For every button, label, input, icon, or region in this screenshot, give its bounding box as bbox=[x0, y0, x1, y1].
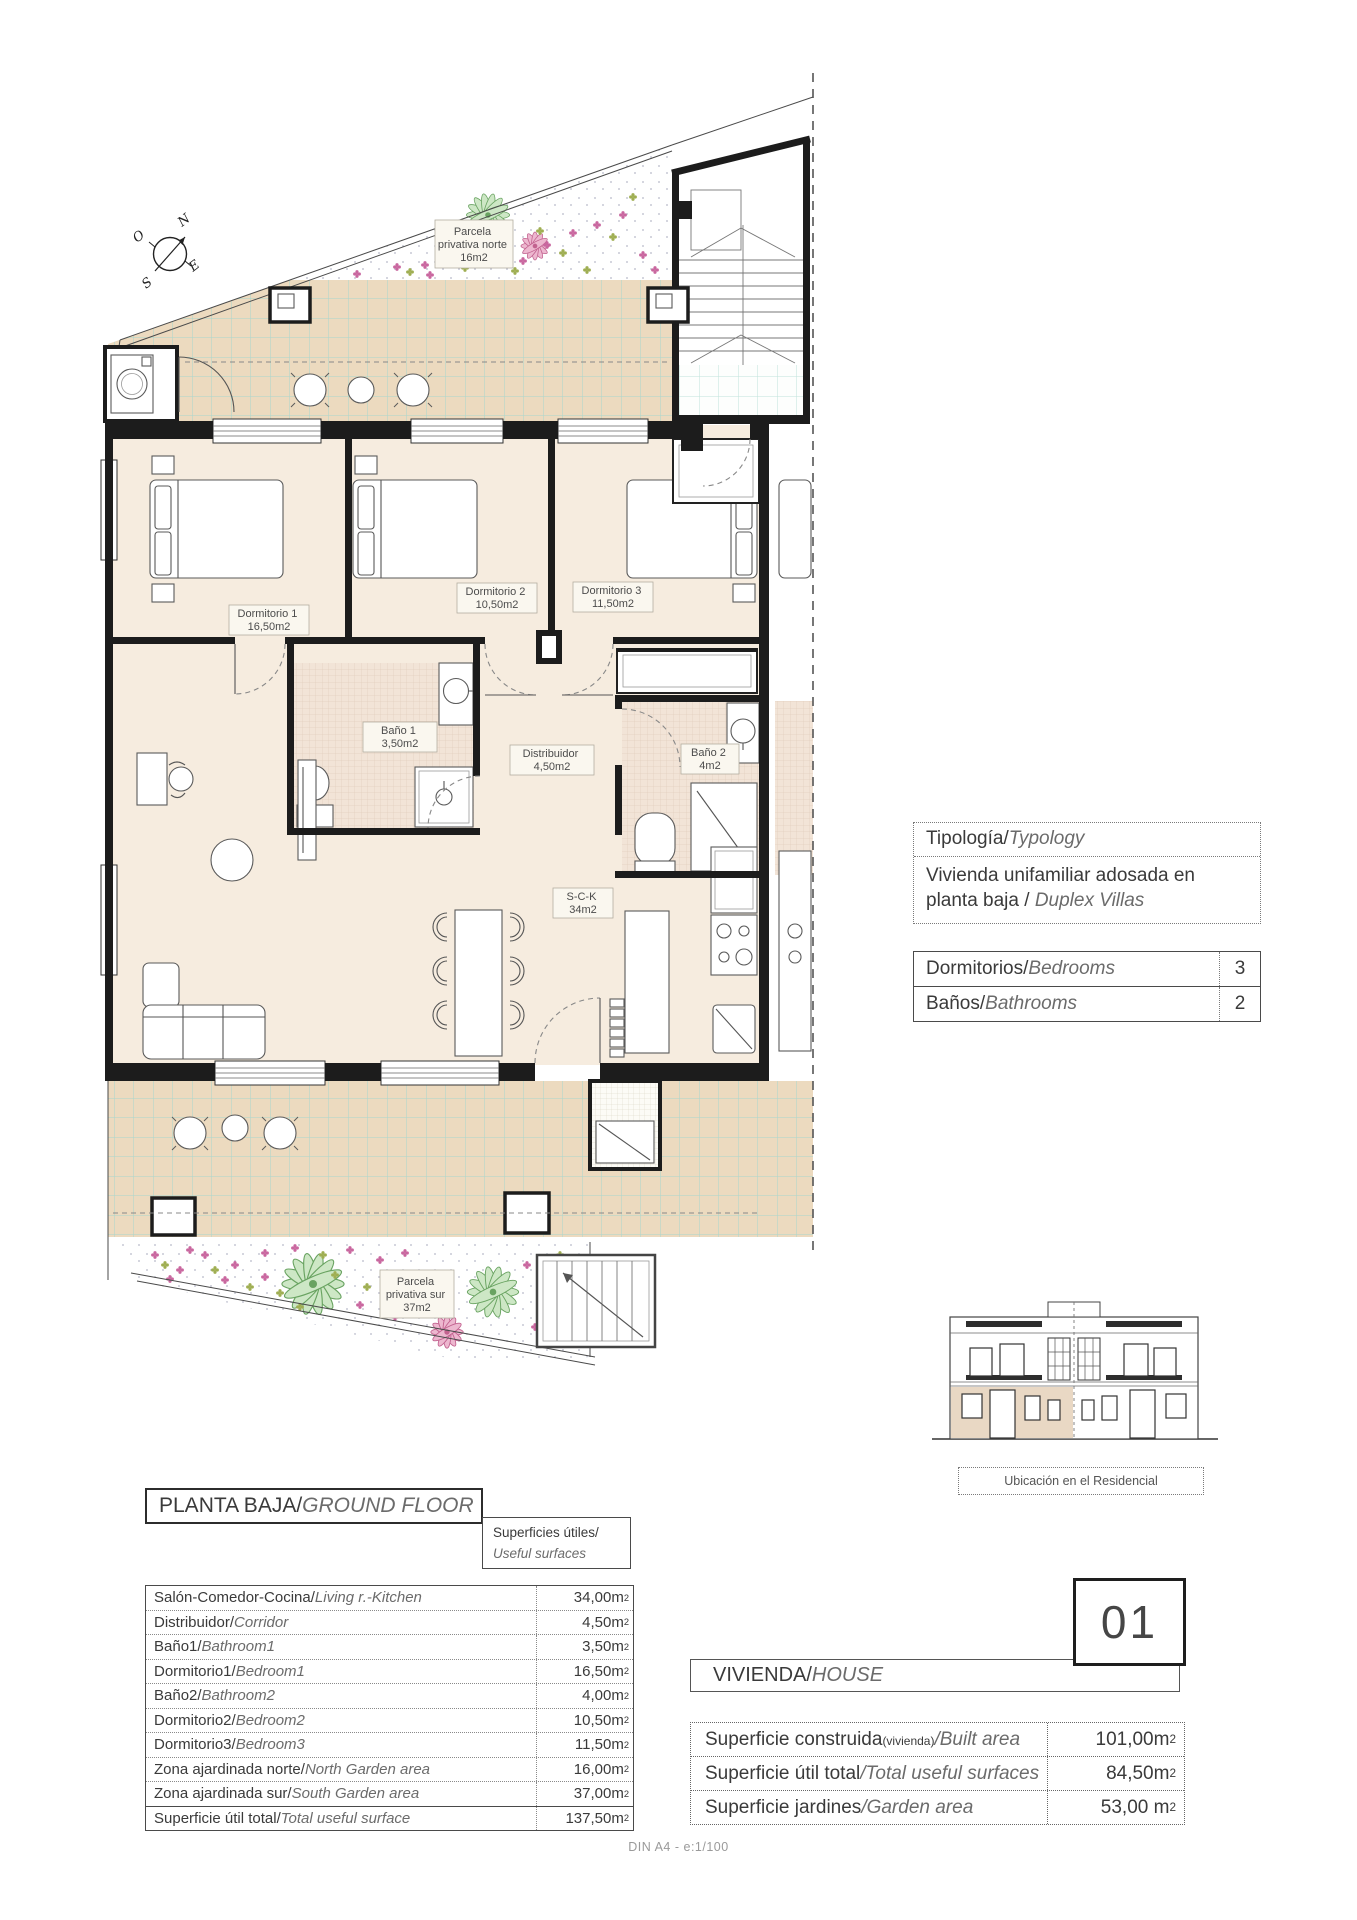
north-terrace bbox=[108, 280, 672, 421]
table-row: Salón-Comedor-Cocina/Living r.-Kitchen 3… bbox=[146, 1586, 633, 1610]
table-row: Dormitorio2/Bedroom2 10,50m2 bbox=[146, 1708, 633, 1733]
table-row: Superficie útil total/Total useful surfa… bbox=[691, 1756, 1184, 1790]
typology-box: Tipología/Typology Vivienda unifamiliar … bbox=[913, 822, 1261, 924]
terrace-furniture-north bbox=[291, 373, 432, 407]
rooms-count-table: Dormitorios/Bedrooms 3 Baños/Bathrooms 2 bbox=[913, 951, 1261, 1022]
south-porch bbox=[590, 1081, 660, 1169]
ground-floor-title: PLANTA BAJA/GROUND FLOOR bbox=[145, 1488, 483, 1524]
south-terrace bbox=[108, 1081, 813, 1237]
house-surfaces-table: Superficie construida(vivienda)/Built ar… bbox=[690, 1722, 1185, 1825]
stairwell bbox=[672, 139, 810, 424]
table-row: Baño1/Bathroom1 3,50m2 bbox=[146, 1634, 633, 1659]
typology-title-es: Tipología/ bbox=[926, 828, 1009, 849]
corridor-closet bbox=[617, 649, 757, 693]
typology-desc-en: Duplex Villas bbox=[1035, 890, 1144, 911]
bathrooms-count: 2 bbox=[1219, 987, 1260, 1021]
useful-surfaces-header: Superficies útiles/ Useful surfaces bbox=[482, 1517, 631, 1569]
table-row: Distribuidor/Corridor 4,50m2 bbox=[146, 1610, 633, 1635]
sheet-scale-note: DIN A4 - e:1/100 bbox=[0, 1840, 1357, 1854]
typology-description: Vivienda unifamiliar adosada en planta b… bbox=[914, 857, 1260, 923]
label-sck: S-C-K 34m2 bbox=[566, 891, 599, 916]
location-caption: Ubicación en el Residencial bbox=[958, 1467, 1204, 1495]
gf-title-es: PLANTA BAJA/ bbox=[159, 1494, 302, 1518]
house-number: 01 bbox=[1101, 1595, 1158, 1649]
table-row: Zona ajardinada norte/North Garden area … bbox=[146, 1757, 633, 1782]
table-row: Superficie construida(vivienda)/Built ar… bbox=[691, 1723, 1184, 1756]
table-row: Dormitorio3/Bedroom3 11,50m2 bbox=[146, 1732, 633, 1757]
typology-title: Tipología/Typology bbox=[914, 823, 1260, 857]
gf-title-en: GROUND FLOOR bbox=[302, 1494, 474, 1518]
south-garden bbox=[120, 1242, 590, 1365]
neighbour-stair bbox=[537, 1255, 655, 1347]
elevation-drawing bbox=[930, 1292, 1220, 1450]
table-row: Superficie jardines/Garden area 53,00 m2 bbox=[691, 1790, 1184, 1824]
neighbour-slivers bbox=[775, 480, 813, 1051]
floor-plan-drawing: Parcela privativa norte 16m2 Dormitorio … bbox=[95, 65, 820, 1375]
label-bano1: Baño 1 3,50m2 bbox=[381, 725, 419, 750]
table-row: Baño2/Bathroom2 4,00m2 bbox=[146, 1683, 633, 1708]
house-number-box: 01 bbox=[1073, 1578, 1186, 1666]
table-row: Dormitorio1/Bedroom1 16,50m2 bbox=[146, 1659, 633, 1684]
table-row: Baños/Bathrooms 2 bbox=[914, 986, 1260, 1021]
table-row-total: Superficie útil total/Total useful surfa… bbox=[146, 1806, 633, 1831]
table-row: Zona ajardinada sur/South Garden area 37… bbox=[146, 1781, 633, 1806]
plan-sheet: N O E S bbox=[0, 0, 1357, 1920]
bedrooms-count: 3 bbox=[1219, 952, 1260, 986]
useful-surfaces-table: Salón-Comedor-Cocina/Living r.-Kitchen 3… bbox=[145, 1585, 634, 1831]
typology-title-en: Typology bbox=[1009, 828, 1085, 849]
table-row: Dormitorios/Bedrooms 3 bbox=[914, 952, 1260, 986]
